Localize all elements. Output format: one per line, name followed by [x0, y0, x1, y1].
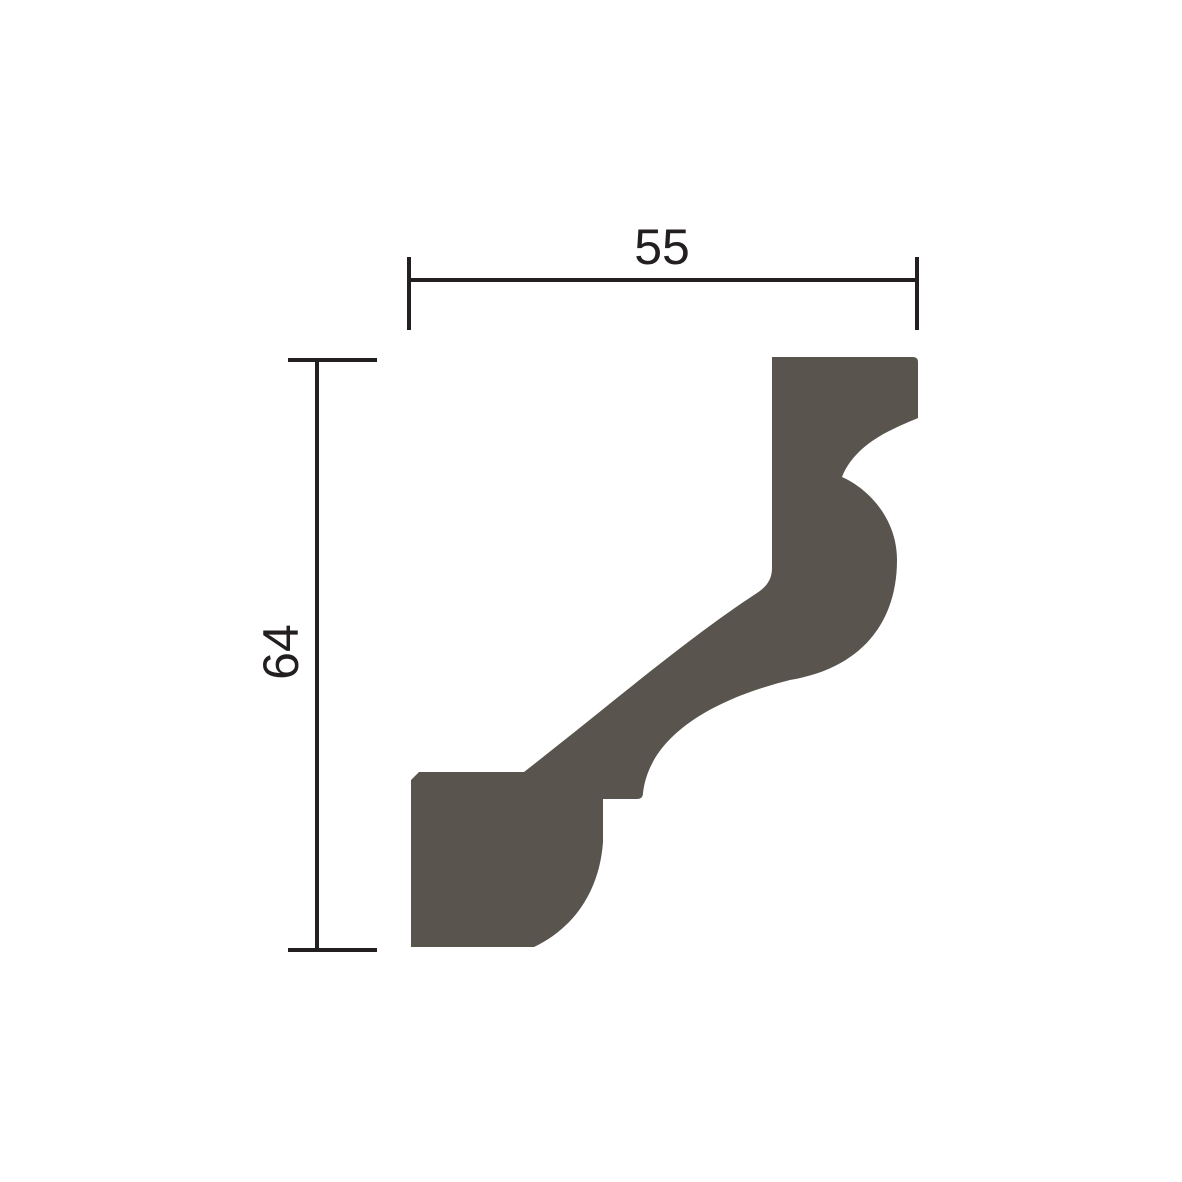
- height-dimension-label: 64: [256, 624, 306, 680]
- width-dimension-label: 55: [634, 222, 690, 272]
- diagram-canvas: 55 64: [0, 0, 1182, 1182]
- molding-diagram: [0, 0, 1182, 1182]
- molding-profile-shape: [411, 357, 918, 947]
